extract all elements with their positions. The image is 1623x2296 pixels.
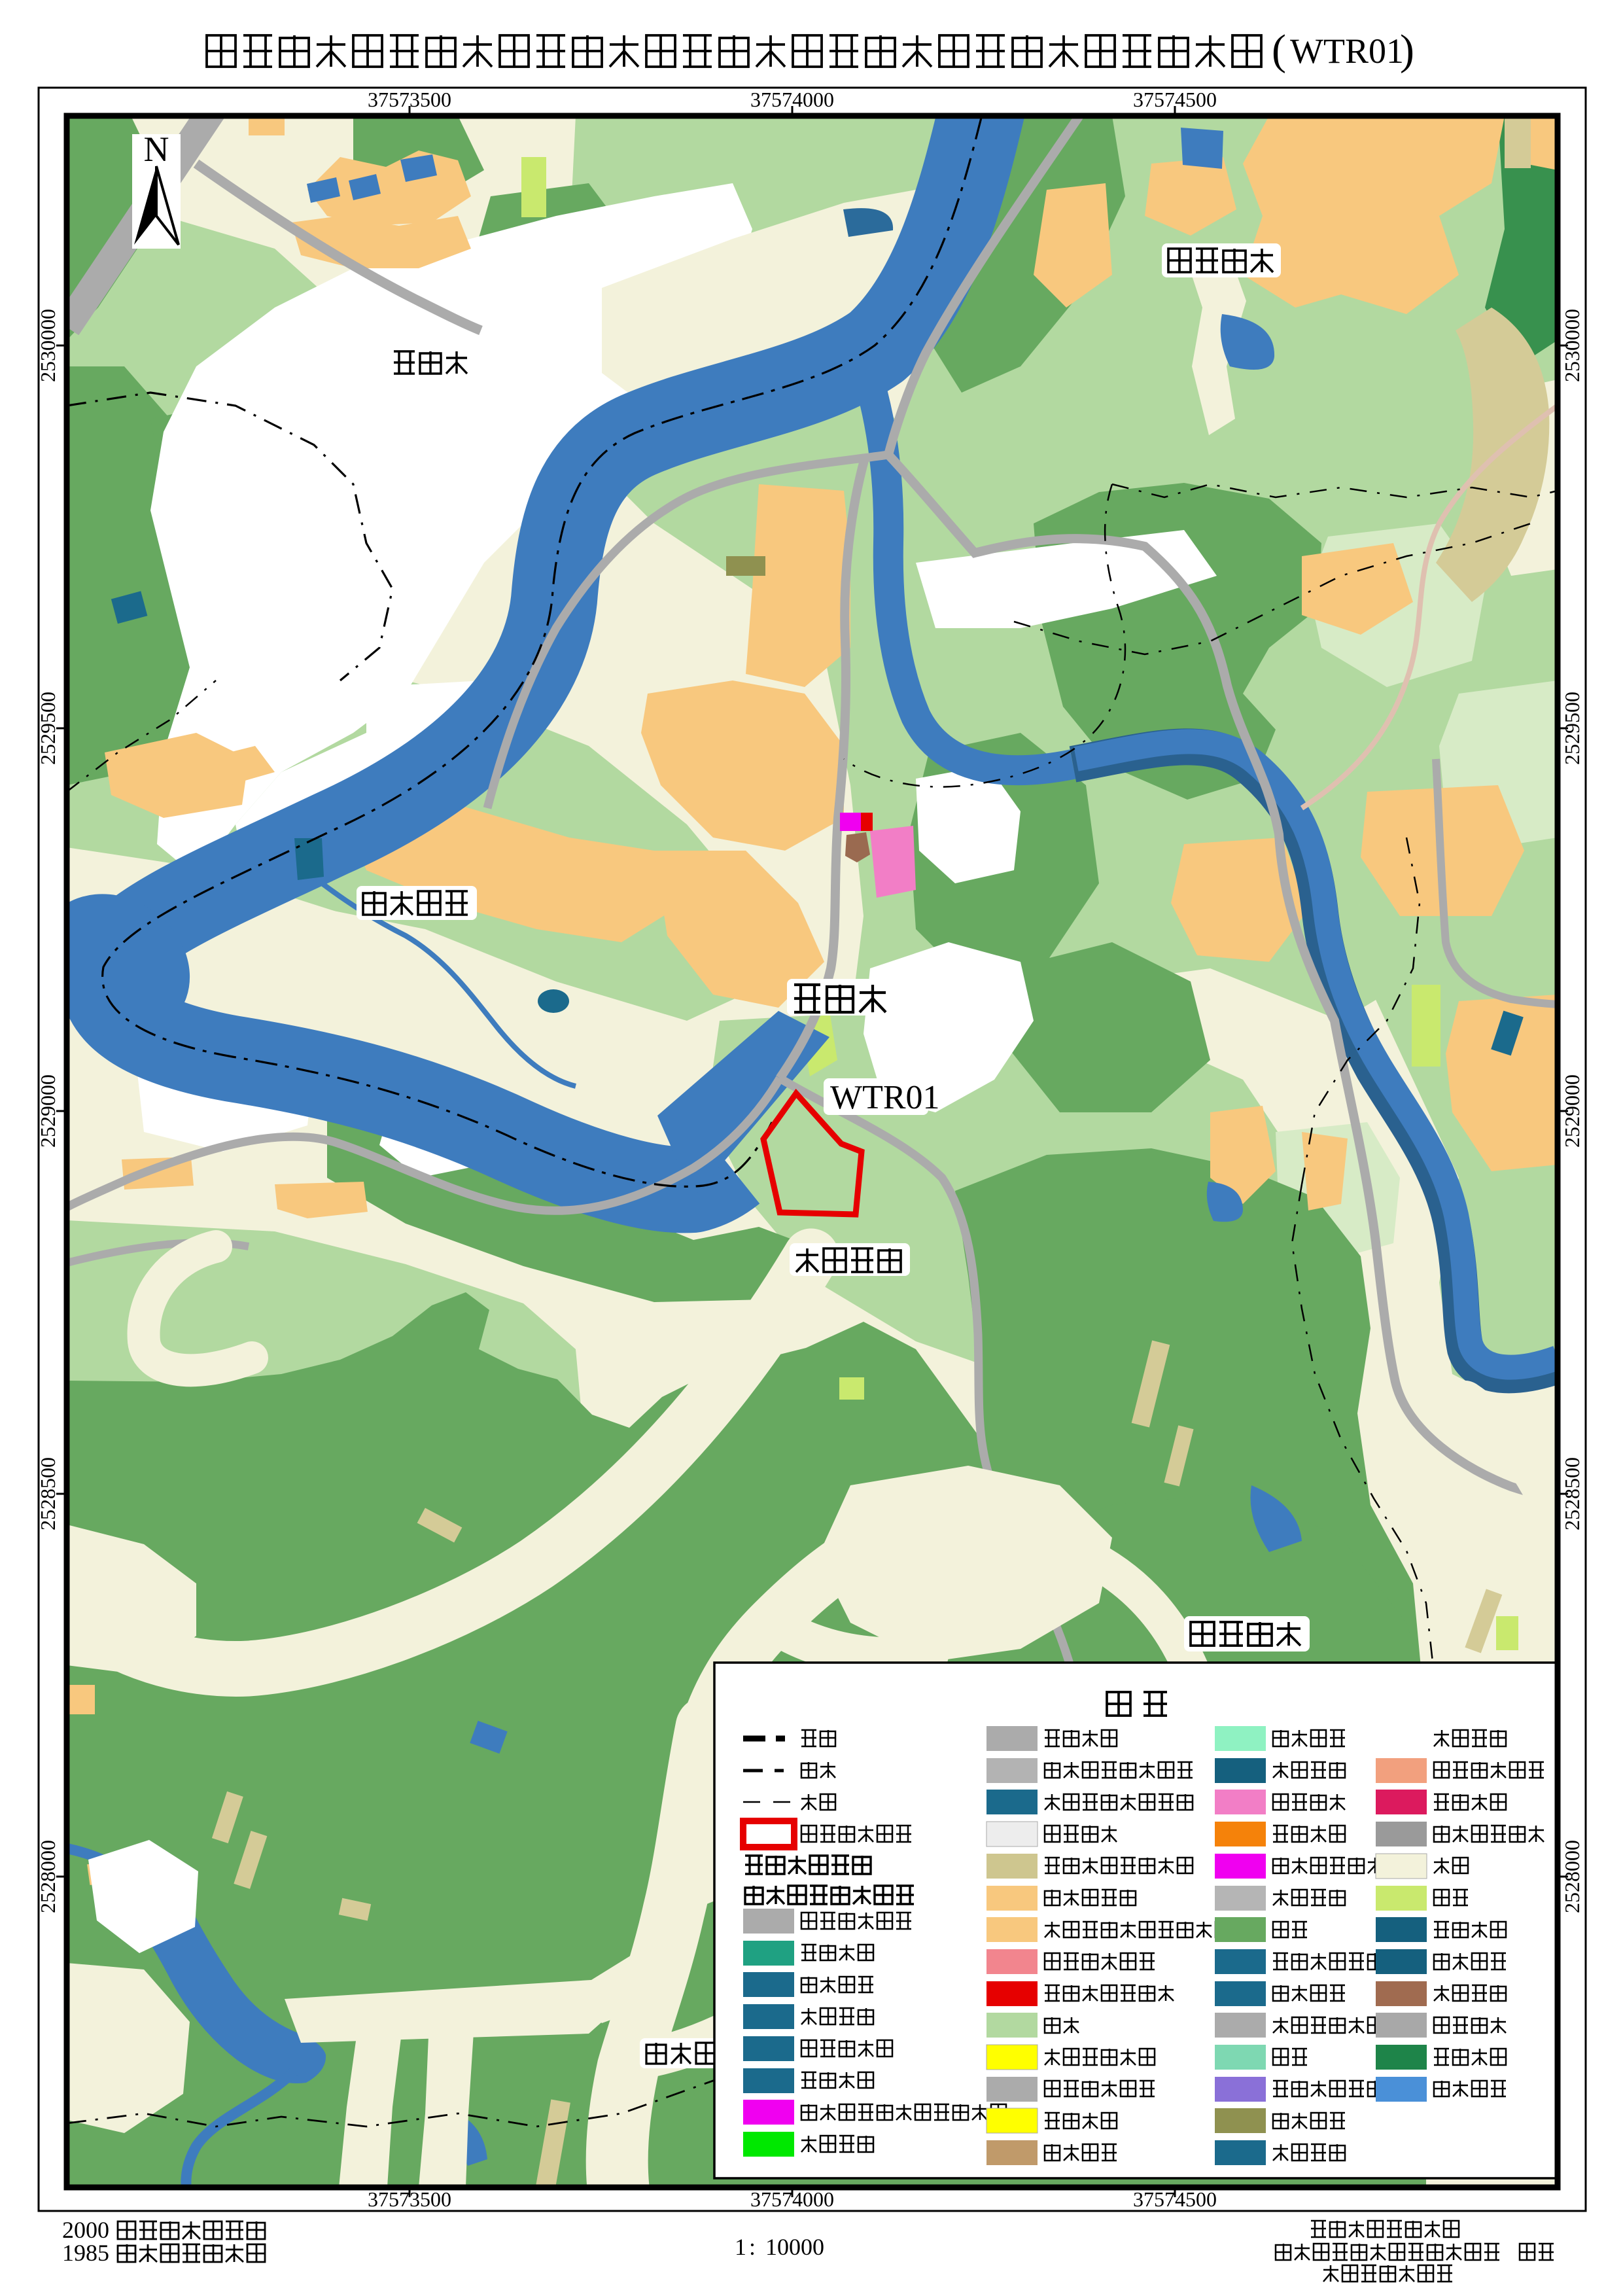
svg-text:WTR01: WTR01 [830,1079,940,1116]
svg-text:1985: 1985 [62,2240,109,2266]
svg-text:): ) [1400,26,1414,74]
svg-text:WTR01: WTR01 [1290,31,1404,71]
svg-text:2000: 2000 [62,2217,109,2243]
svg-text:1: 1 [735,2234,746,2260]
svg-text:N: N [144,130,169,169]
svg-text:2530000: 2530000 [36,309,60,382]
svg-text:2529000: 2529000 [36,1074,60,1148]
svg-text::: : [749,2234,756,2260]
svg-text:2529500: 2529500 [36,692,60,765]
svg-text:2528000: 2528000 [36,1840,60,1913]
svg-text:(: ( [1272,26,1286,74]
svg-text:2528500: 2528500 [36,1457,60,1530]
svg-text:10000: 10000 [765,2234,824,2260]
